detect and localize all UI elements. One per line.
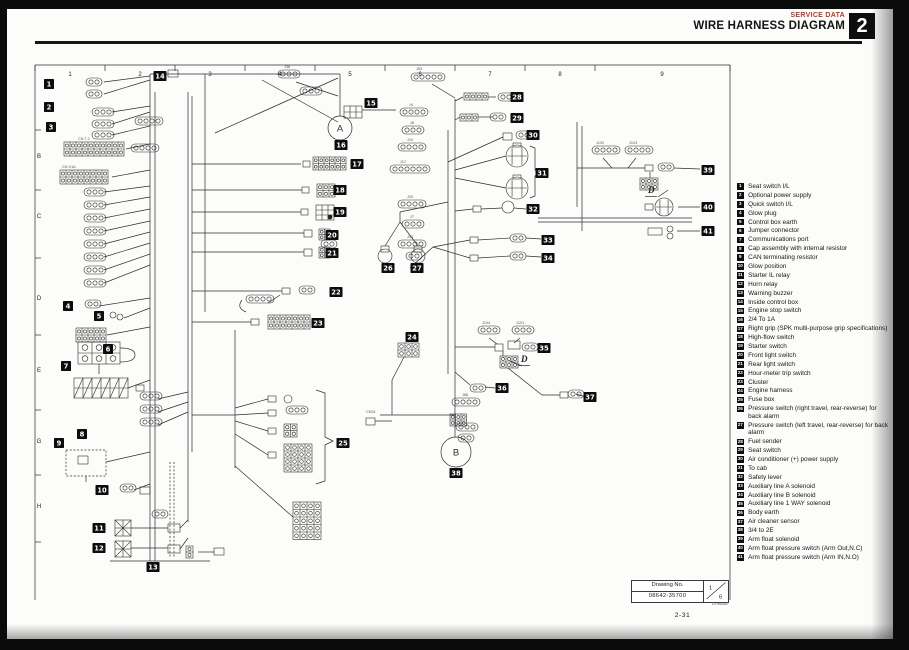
svg-text:22: 22	[331, 289, 341, 297]
legend-item-label: Inside control box	[748, 299, 890, 307]
legend-list: 1Seat switch I/L2Optional power supply3Q…	[737, 183, 890, 563]
legend-item: 22Hour-meter trip switch	[737, 370, 890, 378]
legend-item-label: Glow plug	[748, 210, 890, 218]
svg-text:1: 1	[47, 81, 52, 89]
legend-item-number: 35	[737, 501, 744, 508]
svg-text:8: 8	[80, 431, 85, 439]
legend-item: 3Quick switch I/L	[737, 201, 890, 209]
legend-item-label: Starter switch	[748, 343, 890, 351]
legend-item-number: 10	[737, 263, 744, 270]
header-section-label: SERVICE DATA	[380, 12, 845, 19]
sheet-fraction: 1 6	[704, 581, 728, 602]
svg-text:13: 13	[148, 564, 158, 572]
svg-text:33: 33	[543, 237, 553, 245]
legend-item-label: Cap assembly with internal resistor	[748, 245, 890, 253]
svg-text:5: 5	[348, 72, 352, 78]
legend-item: 4Glow plug	[737, 210, 890, 218]
connector-label: J38	[284, 65, 290, 69]
legend-item-number: 20	[737, 352, 744, 359]
legend-item-label: Engine stop switch	[748, 307, 890, 315]
legend-item-number: 7	[737, 237, 744, 244]
svg-text:29: 29	[512, 115, 522, 123]
legend-item-label: Arm float solenoid	[748, 536, 890, 544]
legend-item: 162/4 To 1A	[737, 316, 890, 324]
legend-item-label: Seat switch I/L	[748, 183, 890, 191]
legend-item-number: 9	[737, 254, 744, 261]
d-marker: D	[520, 354, 528, 364]
svg-text:16: 16	[336, 142, 346, 150]
svg-text:14: 14	[155, 73, 165, 81]
svg-text:B: B	[453, 447, 459, 458]
legend-item-number: 41	[737, 554, 744, 561]
legend-item-label: Body earth	[748, 509, 890, 517]
svg-text:9: 9	[57, 440, 62, 448]
legend-item: 23Cluster	[737, 379, 890, 387]
svg-text:41: 41	[703, 228, 713, 236]
svg-text:4: 4	[66, 303, 71, 311]
manual-page: SERVICE DATA WIRE HARNESS DIAGRAM 2 1234…	[0, 0, 909, 650]
svg-text:21: 21	[327, 250, 337, 258]
connector-label: J104	[482, 321, 490, 325]
legend-item: 14Inside control box	[737, 299, 890, 307]
legend-item-label: 3/4 to 2E	[748, 527, 890, 535]
svg-text:40: 40	[703, 204, 713, 212]
connector-label: CN31	[366, 410, 376, 414]
legend-item: 15Engine stop switch	[737, 307, 890, 315]
svg-text:20: 20	[327, 232, 337, 240]
legend-item-number: 4	[737, 210, 744, 217]
legend-item: 6Jumper connector	[737, 227, 890, 235]
connector-label: J8	[410, 121, 414, 125]
header-rule	[35, 41, 862, 44]
svg-text:35: 35	[539, 345, 549, 353]
scan-edge-left	[0, 0, 7, 650]
connector-label: CN X1A	[62, 165, 76, 169]
legend-item: 9CAN terminating resistor	[737, 254, 890, 262]
legend-item-number: 6	[737, 228, 744, 235]
legend-item-number: 21	[737, 361, 744, 368]
legend-item: 27Pressure switch (left travel, rear-rev…	[737, 422, 890, 437]
legend-item-label: Seat switch	[748, 447, 890, 455]
svg-text:D: D	[37, 296, 42, 302]
legend-item: 36Body earth	[737, 509, 890, 517]
svg-text:31: 31	[537, 170, 547, 178]
connector-label: J13	[407, 235, 413, 239]
svg-text:G: G	[37, 439, 42, 445]
svg-text:C: C	[37, 214, 42, 220]
legend-item-label: Engine harness	[748, 387, 890, 395]
legend-item-label: Optional power supply	[748, 192, 890, 200]
legend-item: 33Auxiliary line A solenoid	[737, 483, 890, 491]
legend-item-label: Jumper connector	[748, 227, 890, 235]
legend-item-label: CAN terminating resistor	[748, 254, 890, 262]
legend-item-number: 32	[737, 474, 744, 481]
legend-item-label: To cab	[748, 465, 890, 473]
svg-text:24: 24	[407, 334, 417, 342]
legend-item: 11Starter IL relay	[737, 272, 890, 280]
legend-item-label: Communications port	[748, 236, 890, 244]
svg-text:38: 38	[451, 470, 461, 478]
svg-text:27: 27	[412, 265, 422, 273]
scan-edge-top	[0, 0, 909, 9]
connector-label: J66	[462, 393, 468, 397]
svg-text:39: 39	[703, 167, 713, 175]
legend-item-label: Pressure switch (left travel, rear-rever…	[748, 422, 890, 437]
legend-item-number: 17	[737, 326, 744, 333]
legend-item-label: Safety lever	[748, 474, 890, 482]
svg-text:2: 2	[47, 104, 52, 112]
legend-item: 29Seat switch	[737, 447, 890, 455]
legend-item-number: 27	[737, 422, 744, 429]
legend-item: 28Fuel sender	[737, 438, 890, 446]
legend-item-number: 33	[737, 483, 744, 490]
legend-item: 26Pressure switch (right travel, rear-re…	[737, 405, 890, 420]
legend-item-label: Fuel sender	[748, 438, 890, 446]
page-title: WIRE HARNESS DIAGRAM	[380, 20, 845, 32]
legend-item: 24Engine harness	[737, 387, 890, 395]
legend-item-number: 11	[737, 272, 744, 279]
legend-item: 1Seat switch I/L	[737, 183, 890, 191]
legend-item: 8Cap assembly with internal resistor	[737, 245, 890, 253]
legend-item-number: 18	[737, 334, 744, 341]
legend-item-label: Pressure switch (right travel, rear-reve…	[748, 405, 890, 420]
legend-item-label: Arm float pressure switch (Arm Out,N.C)	[748, 545, 890, 553]
legend-item: 5Control box earth	[737, 219, 890, 227]
svg-text:36: 36	[497, 385, 507, 393]
legend-item-label: Glow position	[748, 263, 890, 271]
legend-item-number: 28	[737, 439, 744, 446]
svg-text:23: 23	[313, 320, 323, 328]
svg-text:30: 30	[528, 132, 538, 140]
svg-text:6: 6	[106, 346, 111, 354]
legend-item-number: 25	[737, 397, 744, 404]
drawing-code: DY9M082	[696, 602, 728, 606]
legend-item: 32Safety lever	[737, 474, 890, 482]
legend-item: 31To cab	[737, 465, 890, 473]
svg-text:15: 15	[366, 100, 376, 108]
legend-item-number: 12	[737, 281, 744, 288]
wire-harness-diagram: 123456789BCDEGHABDDJ38J53J4J8J10J17J20J7…	[30, 58, 740, 610]
legend-item-label: Horn relay	[748, 281, 890, 289]
svg-text:37: 37	[585, 394, 595, 402]
sheet-total: 6	[719, 595, 722, 601]
legend-item-label: Front light switch	[748, 352, 890, 360]
legend-item-number: 14	[737, 299, 744, 306]
legend-item-number: 29	[737, 447, 744, 454]
legend-item-number: 26	[737, 406, 744, 413]
legend-item-label: Control box earth	[748, 219, 890, 227]
connector-label: J17	[400, 160, 406, 164]
legend-item: 41Arm float pressure switch (Arm IN,N.O)	[737, 554, 890, 562]
svg-text:1: 1	[68, 72, 72, 78]
legend-item: 34Auxiliary line B solenoid	[737, 492, 890, 500]
connector-label: CN 7-1	[78, 137, 90, 141]
legend-item-label: Air conditioner (+) power supply	[748, 456, 890, 464]
legend-item-label: Cluster	[748, 379, 890, 387]
legend-item-label: Warning buzzer	[748, 290, 890, 298]
page-number: 2-31	[655, 612, 710, 619]
svg-text:17: 17	[352, 161, 362, 169]
legend-item-number: 34	[737, 492, 744, 499]
legend-item: 25Fuse box	[737, 396, 890, 404]
legend-item-number: 8	[737, 246, 744, 253]
legend-item-number: 19	[737, 343, 744, 350]
legend-item-number: 15	[737, 308, 744, 315]
legend-item: 40Arm float pressure switch (Arm Out,N.C…	[737, 545, 890, 553]
svg-text:8: 8	[558, 72, 562, 78]
legend-item-number: 16	[737, 317, 744, 324]
legend-item-number: 5	[737, 219, 744, 226]
legend-item: 18High-flow switch	[737, 334, 890, 342]
svg-text:11: 11	[94, 525, 104, 533]
legend-item-label: Auxiliary line 1 WAY solenoid	[748, 500, 890, 508]
legend-item-label: Hour-meter trip switch	[748, 370, 890, 378]
page-header: SERVICE DATA WIRE HARNESS DIAGRAM	[380, 12, 845, 32]
legend-item: 13Warning buzzer	[737, 290, 890, 298]
legend-item-number: 13	[737, 290, 744, 297]
legend-item-label: Auxiliary line B solenoid	[748, 492, 890, 500]
chapter-number-badge: 2	[849, 13, 875, 39]
legend-item-number: 30	[737, 456, 744, 463]
svg-text:12: 12	[94, 545, 104, 553]
legend-item: 383/4 to 2E	[737, 527, 890, 535]
legend-item-label: High-flow switch	[748, 334, 890, 342]
connector-label: J7	[410, 215, 414, 219]
svg-text:A: A	[337, 123, 344, 134]
connector-label: J102	[596, 141, 604, 145]
legend-item: 35Auxiliary line 1 WAY solenoid	[737, 500, 890, 508]
svg-text:28: 28	[512, 94, 522, 102]
legend-item: 39Arm float solenoid	[737, 536, 890, 544]
svg-text:25: 25	[338, 440, 348, 448]
svg-text:E: E	[37, 368, 41, 374]
d-marker: D	[647, 185, 655, 195]
sheet-number: 1	[709, 586, 712, 592]
svg-text:4: 4	[278, 72, 282, 78]
legend-item-label: Fuse box	[748, 396, 890, 404]
connector-label: J101	[516, 321, 524, 325]
drawing-no-label: Drawing No.	[632, 581, 703, 592]
legend-item-number: 39	[737, 536, 744, 543]
connector-label: J103	[629, 141, 637, 145]
svg-text:19: 19	[335, 209, 345, 217]
legend-item: 17Right grip (SPK multi-purpose grip spe…	[737, 325, 890, 333]
legend-item: 2Optional power supply	[737, 192, 890, 200]
svg-text:B: B	[37, 154, 41, 160]
legend-item-number: 31	[737, 465, 744, 472]
drawing-no-value: 08642-35700	[632, 592, 703, 602]
drawing-number-box: Drawing No. 08642-35700 1 6	[631, 580, 729, 603]
legend-item: 10Glow position	[737, 263, 890, 271]
svg-text:3: 3	[49, 124, 54, 132]
svg-text:18: 18	[335, 187, 345, 195]
legend-item-label: Auxiliary line A solenoid	[748, 483, 890, 491]
legend-item: 7Communications port	[737, 236, 890, 244]
svg-text:7: 7	[64, 363, 69, 371]
legend-item-number: 22	[737, 370, 744, 377]
legend-item-label: Arm float pressure switch (Arm IN,N.O)	[748, 554, 890, 562]
svg-text:7: 7	[488, 72, 492, 78]
connector-label: J4	[409, 103, 413, 107]
legend-item-number: 40	[737, 545, 744, 552]
svg-text:3: 3	[208, 72, 212, 78]
legend-item-label: Right grip (SPK multi-purpose grip speci…	[748, 325, 890, 333]
legend-item-number: 1	[737, 183, 744, 190]
legend-item-label: Air cleaner sensor	[748, 518, 890, 526]
legend-item: 19Starter switch	[737, 343, 890, 351]
svg-text:H: H	[37, 504, 41, 510]
legend-item-number: 24	[737, 388, 744, 395]
legend-item-number: 2	[737, 192, 744, 199]
svg-text:5: 5	[97, 313, 102, 321]
legend-item: 12Horn relay	[737, 281, 890, 289]
legend-item-number: 36	[737, 510, 744, 517]
connector-label: J53	[416, 67, 422, 71]
legend-item-label: Quick switch I/L	[748, 201, 890, 209]
legend-item: 30Air conditioner (+) power supply	[737, 456, 890, 464]
svg-text:10: 10	[97, 487, 107, 495]
scan-shadow-bottom	[7, 624, 893, 639]
legend-item-label: Starter IL relay	[748, 272, 890, 280]
svg-text:26: 26	[383, 265, 393, 273]
legend-item-number: 38	[737, 527, 744, 534]
legend-item-number: 37	[737, 519, 744, 526]
scan-edge-right	[893, 0, 909, 650]
legend-item: 21Rear light switch	[737, 361, 890, 369]
svg-text:32: 32	[528, 206, 538, 214]
legend-item-label: Rear light switch	[748, 361, 890, 369]
svg-text:34: 34	[543, 255, 553, 263]
svg-text:9: 9	[660, 72, 664, 78]
scan-edge-bottom	[0, 639, 909, 650]
legend-item: 37Air cleaner sensor	[737, 518, 890, 526]
legend-item: 20Front light switch	[737, 352, 890, 360]
legend-item-number: 3	[737, 201, 744, 208]
legend-item-label: 2/4 To 1A	[748, 316, 890, 324]
legend-item-number: 23	[737, 379, 744, 386]
connector-label: J10	[407, 138, 413, 142]
connector-label: J20	[407, 195, 413, 199]
